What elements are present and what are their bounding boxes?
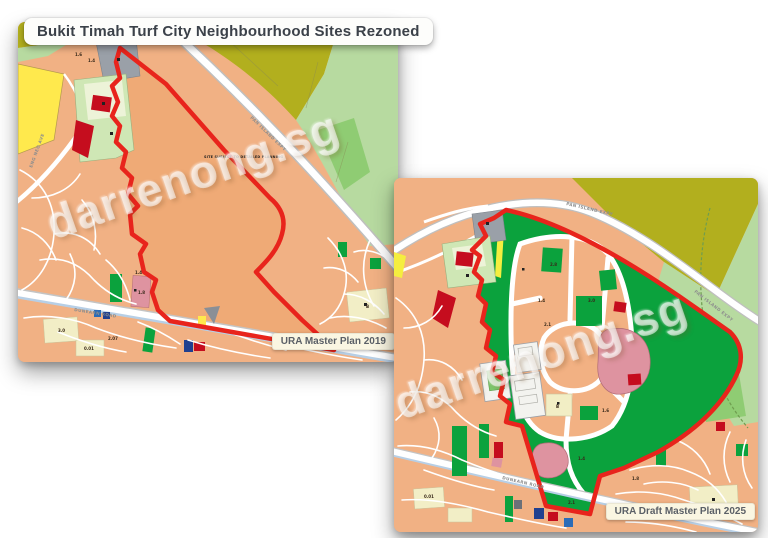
plot-ratio-label: 1.4 <box>88 58 95 63</box>
plot-ratio-label: 2.1 <box>568 500 575 505</box>
map-2025-panel: PAN ISLAND EXPY PAN ISLAND EXPY DUNEARN … <box>394 178 758 532</box>
plot-ratio-label: 1.4 <box>135 270 142 275</box>
site-note: SITE SUBJECT TO DETAILED PLANNING <box>204 155 283 159</box>
map-2019-graphic: SITE SUBJECT TO DETAILED PLANNING PAN IS… <box>18 22 398 362</box>
plot-ratio-label: 3.0 <box>588 298 595 303</box>
page-title: Bukit Timah Turf City Neighbourhood Site… <box>24 18 433 45</box>
plot-ratio-label: B <box>556 404 559 409</box>
plot-ratio-label: B <box>366 304 369 309</box>
plot-ratio-label: 1.6 <box>602 408 609 413</box>
map-2019-panel: SITE SUBJECT TO DETAILED PLANNING PAN IS… <box>18 22 398 362</box>
plot-ratio-label: 1.8 <box>632 476 639 481</box>
plot-ratio-label: 0.01 <box>424 494 434 499</box>
plot-ratio-label: 0.01 <box>84 346 94 351</box>
plot-ratio-label: 2.1 <box>544 322 551 327</box>
canvas: SITE SUBJECT TO DETAILED PLANNING PAN IS… <box>0 0 768 538</box>
plot-ratio-label: 2.07 <box>108 336 118 341</box>
plot-ratio-label: 1.4 <box>578 456 585 461</box>
plot-ratio-label: 2.8 <box>550 262 557 267</box>
plot-ratio-label: 1.4 <box>538 298 545 303</box>
map-2025-caption: URA Draft Master Plan 2025 <box>606 503 755 520</box>
plot-ratio-label: 1.6 <box>75 52 82 57</box>
plot-ratio-label: 1.8 <box>138 290 145 295</box>
plot-ratio-label: 3.0 <box>58 328 65 333</box>
map-2019-caption: URA Master Plan 2019 <box>272 333 395 350</box>
map-2025-graphic: PAN ISLAND EXPY PAN ISLAND EXPY DUNEARN … <box>394 178 758 532</box>
